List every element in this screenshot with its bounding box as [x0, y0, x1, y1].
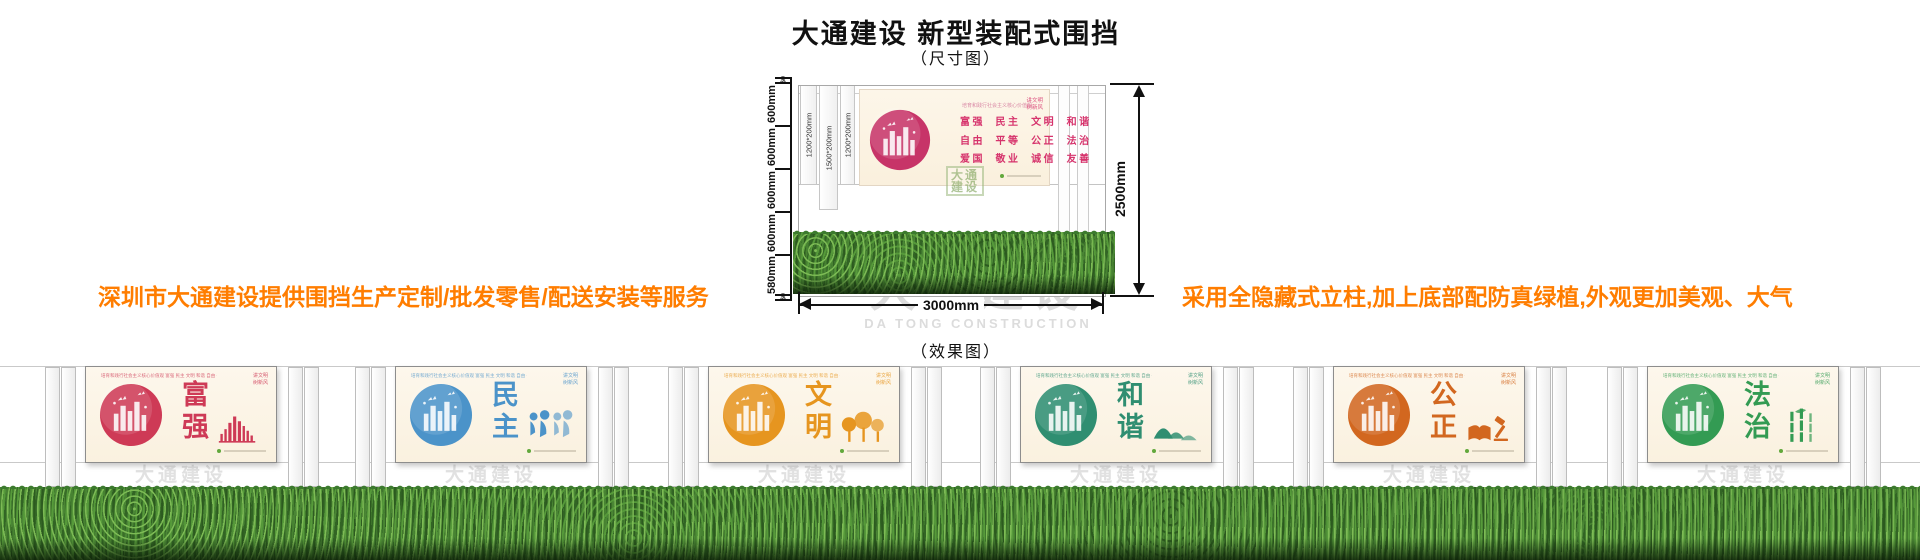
core-values-row: 自由 平等 公正 法治 [960, 133, 1092, 152]
panel-header-text: 培育和践行社会主义核心价值观 富强 民主 文明 和谐 自由 平等 公正 法治 爱… [1036, 373, 1152, 379]
panel-credit-mark [527, 449, 576, 453]
panel-motif [527, 407, 575, 445]
fence-graphic-board: 培育和践行社会主义核心价值观 富强 民主 文明 和谐 自由 平等 公正 法治 爱… [859, 89, 1050, 186]
board-corner-text: 讲文明 树新风 [1026, 98, 1043, 112]
effect-diagram-label: （效果图） [911, 338, 1001, 362]
post-strip [598, 367, 613, 487]
feature-note: 采用全隐藏式立柱,加上底部配防真绿植,外观更加美观、大气 [1182, 278, 1793, 312]
papercut-circle-icon [408, 382, 474, 448]
credit-bar [1159, 450, 1201, 453]
post-strip: 1500*200mm [819, 86, 838, 210]
panel-theme-illustration [1346, 382, 1412, 448]
papercut-circle-icon [868, 108, 932, 172]
panel-corner-line: 讲文明 [253, 373, 268, 380]
panel-header-text: 培育和践行社会主义核心价值观 富强 民主 文明 和谐 自由 平等 公正 法治 爱… [1349, 373, 1465, 379]
panel-header-text: 培育和践行社会主义核心价值观 富强 民主 文明 和谐 自由 平等 公正 法治 爱… [411, 373, 527, 379]
dimension-line [1138, 87, 1140, 293]
panel-corner-text: 讲文明 树新风 [1188, 373, 1203, 386]
poster: 大通建设 新型装配式围挡 （尺寸图） 深圳市大通建设提供围挡生产定制/批发零售/… [0, 0, 1920, 560]
fence-post [1607, 367, 1637, 487]
post-strip [304, 367, 319, 487]
green-dot-icon [217, 449, 221, 453]
board-corner-line: 树新风 [1026, 105, 1043, 112]
green-dot-icon [527, 449, 531, 453]
fence-post [45, 367, 75, 487]
panel-title: 公正 [1422, 380, 1461, 456]
post-strip [980, 367, 995, 487]
height-dimension: 2500mm [1110, 83, 1158, 307]
post-strip [684, 367, 699, 487]
post-strip [1293, 367, 1308, 487]
panel-corner-line: 讲文明 [1188, 373, 1203, 380]
panel-corner-line: 讲文明 [1815, 373, 1830, 380]
arrow-up-icon [1133, 85, 1145, 97]
panel-credit-mark [1465, 449, 1514, 453]
panel-header-text: 培育和践行社会主义核心价值观 富强 民主 文明 和谐 自由 平等 公正 法治 爱… [101, 373, 217, 379]
credit-bar [224, 450, 266, 453]
fence-panel-skyline: 培育和践行社会主义核心价值观 富强 民主 文明 和谐 自由 平等 公正 法治 爱… [85, 366, 277, 463]
panel-title: 法治 [1736, 380, 1775, 456]
post-strip [1239, 367, 1254, 487]
fence-post [1223, 367, 1253, 487]
dimension-diagram-label: （尺寸图） [911, 45, 1001, 69]
fence-panel-book-gavel: 培育和践行社会主义核心价值观 富强 民主 文明 和谐 自由 平等 公正 法治 爱… [1333, 366, 1525, 463]
panel-title: 和谐 [1109, 380, 1148, 456]
panel-title: 富强 [174, 380, 213, 456]
panel-credit-mark [217, 449, 266, 453]
green-dot-icon [1152, 449, 1156, 453]
panel-motif [1779, 407, 1827, 445]
fence-panel-mountains: 培育和践行社会主义核心价值观 富强 民主 文明 和谐 自由 平等 公正 法治 爱… [1020, 366, 1212, 463]
post-strip: 1200*200mm [840, 86, 855, 185]
panel-corner-line: 讲文明 [876, 373, 891, 380]
dimension-cap [1110, 295, 1154, 297]
fence-post [1293, 367, 1323, 487]
ruler-segment-label: 580mm [766, 245, 778, 305]
post-strip [45, 367, 60, 487]
post-strip [996, 367, 1011, 487]
post-strip [288, 367, 303, 487]
height-dimension-label: 2500mm [1112, 149, 1128, 229]
post-strip [1309, 367, 1324, 487]
post-strip [668, 367, 683, 487]
papercut-circle-icon [1033, 382, 1099, 448]
post-strip [1623, 367, 1638, 487]
panel-motif [1465, 407, 1513, 445]
papercut-circle-icon [98, 382, 164, 448]
fence-post [1850, 367, 1880, 487]
ruler-line [790, 78, 792, 300]
fence-post [288, 367, 318, 487]
panel-corner-line: 树新风 [253, 380, 268, 387]
panel-corner-line: 树新风 [1501, 380, 1516, 387]
artificial-hedge [0, 487, 1920, 560]
green-dot-icon [1779, 449, 1783, 453]
credit-bar [1472, 450, 1514, 453]
fence-post [355, 367, 385, 487]
people-figures-icon [527, 407, 575, 445]
dimension-cap [1110, 83, 1154, 85]
panel-corner-line: 讲文明 [1501, 373, 1516, 380]
panel-corner-line: 讲文明 [563, 373, 578, 380]
fence-post [668, 367, 698, 487]
panel-theme-illustration [1033, 382, 1099, 448]
green-dot-icon [1465, 449, 1469, 453]
trees-icon [840, 407, 888, 445]
post-strip [1223, 367, 1238, 487]
panel-corner-text: 讲文明 树新风 [876, 373, 891, 386]
panel-corner-line: 树新风 [563, 380, 578, 387]
post-strip [1866, 367, 1881, 487]
width-dimension-label: 3000mm [918, 297, 984, 313]
post-strip: 1200*200mm [800, 86, 817, 185]
skyline-icon [217, 407, 265, 445]
panel-corner-text: 讲文明 树新风 [253, 373, 268, 386]
ruler-small-label: 60 [781, 287, 788, 307]
panel-theme-illustration [1660, 382, 1726, 448]
board-slogan: 培育和践行社会主义核心价值观 [962, 102, 1032, 109]
dimension-diagram: 大通建设 DA TONG CONSTRUCTION 1200*200mm 150… [760, 70, 1190, 330]
arrow-right-icon [1091, 298, 1103, 310]
ruler-small-label: 60 [781, 70, 788, 90]
fence-post [1536, 367, 1566, 487]
fence-post [911, 367, 941, 487]
width-dimension: 3000mm [798, 298, 1104, 320]
fence-post [980, 367, 1010, 487]
papercut-city-illustration [868, 108, 932, 172]
arrow-left-icon [799, 298, 811, 310]
panel-motif [217, 407, 265, 445]
fence-post [598, 367, 628, 487]
service-note: 深圳市大通建设提供围挡生产定制/批发零售/配送安装等服务 [98, 278, 709, 312]
papercut-circle-icon [721, 382, 787, 448]
arrow-down-icon [1133, 283, 1145, 295]
panel-corner-text: 讲文明 树新风 [1501, 373, 1516, 386]
post-strip [371, 367, 386, 487]
credit-bar [1007, 175, 1041, 178]
datong-logo-stamp: 大通 建设 [946, 166, 984, 196]
panel-theme-illustration [408, 382, 474, 448]
post-strip [1536, 367, 1551, 487]
panel-corner-text: 讲文明 树新风 [1815, 373, 1830, 386]
core-values-text: 富强 民主 文明 和谐 自由 平等 公正 法治 爱国 敬业 诚信 友善 [960, 114, 1092, 170]
bamboo-icon [1779, 407, 1827, 445]
post-strip [61, 367, 76, 487]
fence-panel-bamboo: 培育和践行社会主义核心价值观 富强 民主 文明 和谐 自由 平等 公正 法治 爱… [1647, 366, 1839, 463]
core-values-row: 富强 民主 文明 和谐 [960, 114, 1092, 133]
panel-corner-text: 讲文明 树新风 [563, 373, 578, 386]
post-size-label: 1500*200mm [824, 108, 833, 188]
post-size-label: 1200*200mm [804, 95, 813, 175]
fence-panel-figures: 培育和践行社会主义核心价值观 富强 民主 文明 和谐 自由 平等 公正 法治 爱… [395, 366, 587, 463]
panel-corner-line: 树新风 [1188, 380, 1203, 387]
panel-title: 文明 [797, 380, 836, 456]
post-strip [1552, 367, 1567, 487]
post-strip [1850, 367, 1865, 487]
panel-title: 民主 [484, 380, 523, 456]
panel-credit-mark [1779, 449, 1828, 453]
diagram-hedge [793, 232, 1115, 294]
credit-bar [847, 450, 889, 453]
panel-theme-illustration [98, 382, 164, 448]
post-strip [1607, 367, 1622, 487]
papercut-circle-icon [1346, 382, 1412, 448]
green-dot-icon [1000, 174, 1004, 178]
green-dot-icon [840, 449, 844, 453]
panel-theme-illustration [721, 382, 787, 448]
board-corner-line: 讲文明 [1026, 98, 1043, 105]
book-gavel-icon [1465, 407, 1513, 445]
post-strip [355, 367, 370, 487]
credit-bar [534, 450, 576, 453]
post-strip [927, 367, 942, 487]
panel-motif [1152, 407, 1200, 445]
fence-panel-trees: 培育和践行社会主义核心价值观 富强 民主 文明 和谐 自由 平等 公正 法治 爱… [708, 366, 900, 463]
panel-corner-line: 树新风 [876, 380, 891, 387]
papercut-circle-icon [1660, 382, 1726, 448]
board-credit-mark [1000, 174, 1041, 178]
post-size-label: 1200*200mm [843, 95, 852, 175]
panel-header-text: 培育和践行社会主义核心价值观 富强 民主 文明 和谐 自由 平等 公正 法治 爱… [1663, 373, 1779, 379]
panel-credit-mark [1152, 449, 1201, 453]
credit-bar [1786, 450, 1828, 453]
mountains-icon [1152, 407, 1200, 445]
post-strip [614, 367, 629, 487]
left-dimension-ruler: 60 600mm 600mm 600mm 600mm 580mm 60 [760, 78, 794, 302]
panel-header-text: 培育和践行社会主义核心价值观 富强 民主 文明 和谐 自由 平等 公正 法治 爱… [724, 373, 840, 379]
logo-line: 建设 [951, 181, 979, 193]
panel-credit-mark [840, 449, 889, 453]
post-strip [911, 367, 926, 487]
panel-motif [840, 407, 888, 445]
panel-corner-line: 树新风 [1815, 380, 1830, 387]
